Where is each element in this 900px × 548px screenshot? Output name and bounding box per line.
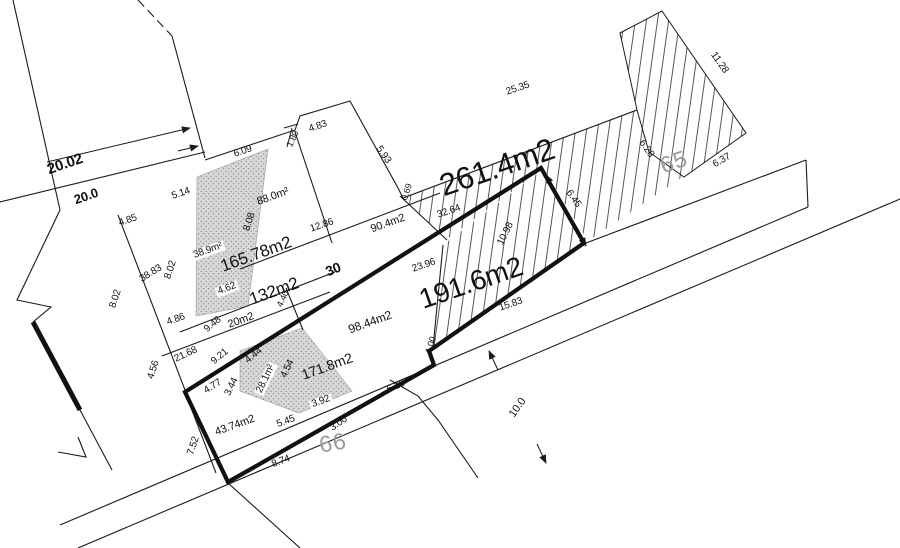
parcel-number: 66	[317, 429, 348, 456]
thick-wall-segment	[33, 322, 80, 410]
north-tick	[58, 437, 86, 457]
survey-plan-canvas: 261.4m2191.6m2165.78m2132m2171.8m298.44m…	[0, 0, 900, 548]
